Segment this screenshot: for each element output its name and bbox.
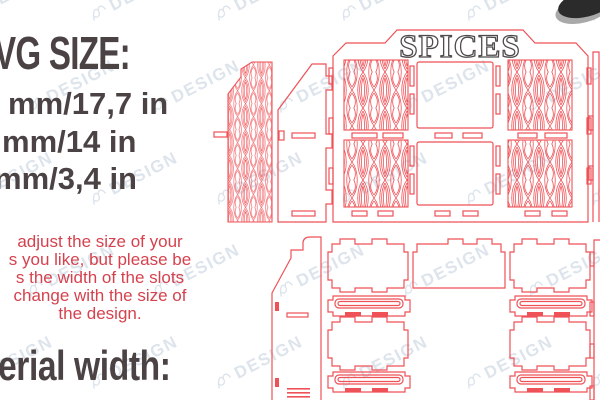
panel-title-text: SPICES <box>399 29 521 65</box>
side-panel-lattice <box>214 62 272 222</box>
center-shelf-panel <box>413 239 505 288</box>
laser-cut-sheet-drawing: SPICES <box>0 0 600 400</box>
shelf-panels <box>328 239 590 370</box>
shelf-front-strips <box>328 296 592 392</box>
product-preview-image: DESIGNDESIGNDESIGNDESIGNDESIGNDESIGNDESI… <box>0 0 600 400</box>
photo-fragment <box>551 0 600 29</box>
divider-panel <box>272 237 321 400</box>
side-panel-plain <box>278 64 332 222</box>
front-panel: SPICES <box>329 29 591 222</box>
